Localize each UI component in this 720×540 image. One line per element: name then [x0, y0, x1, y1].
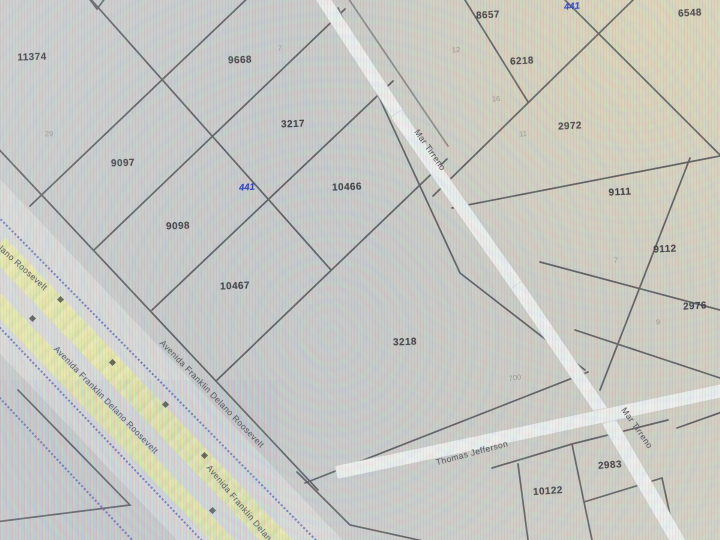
parcel-label: 3218: [393, 338, 417, 349]
parcel-label: 8657: [476, 10, 500, 21]
map-viewport[interactable]: 1137496683217909710466909810467321886576…: [0, 0, 720, 540]
small-number-label: 700: [508, 373, 521, 382]
parcel-label: 2976: [683, 301, 707, 312]
parcel-label: 2972: [558, 121, 582, 132]
parcel-label: 6218: [510, 56, 534, 67]
reference-label: 441: [239, 183, 255, 194]
parcel-label: 6548: [678, 8, 702, 19]
parcel-label: 9668: [228, 56, 252, 67]
parcel-label: 2983: [598, 460, 622, 472]
parcel-label: 9111: [608, 187, 631, 198]
parcel-label: 10466: [332, 182, 362, 193]
small-number-label: 7: [614, 256, 618, 264]
parcel-label: 10467: [220, 281, 250, 292]
parcel-label: 3217: [281, 120, 305, 131]
parcel-label: 11374: [17, 52, 47, 63]
parcel-label: 9097: [111, 159, 135, 170]
small-number-label: 9: [656, 318, 660, 326]
small-number-label: 16: [492, 95, 501, 103]
parcel-label: 9098: [166, 222, 190, 233]
parcel-label: 9112: [653, 244, 677, 255]
parcel-label: 10122: [533, 486, 563, 498]
reference-label: 441: [564, 2, 581, 13]
small-number-label: 29: [45, 130, 54, 138]
small-number-label: 7: [278, 44, 282, 52]
small-number-label: 12: [452, 46, 461, 54]
small-number-label: 11: [519, 130, 527, 138]
